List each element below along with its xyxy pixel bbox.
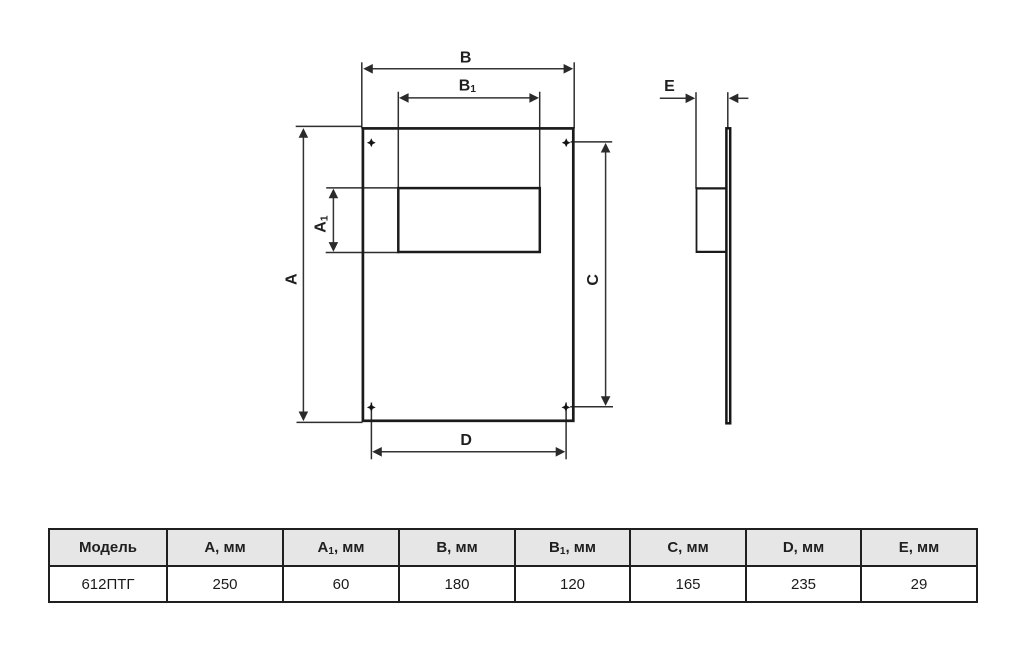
- svg-text:B1: B1: [459, 78, 477, 95]
- svg-text:D: D: [460, 432, 472, 449]
- svg-text:C: C: [585, 274, 602, 286]
- svg-text:B: B: [460, 50, 472, 67]
- svg-text:A: A: [284, 273, 301, 285]
- svg-text:A1: A1: [313, 215, 331, 233]
- svg-text:E: E: [664, 78, 675, 95]
